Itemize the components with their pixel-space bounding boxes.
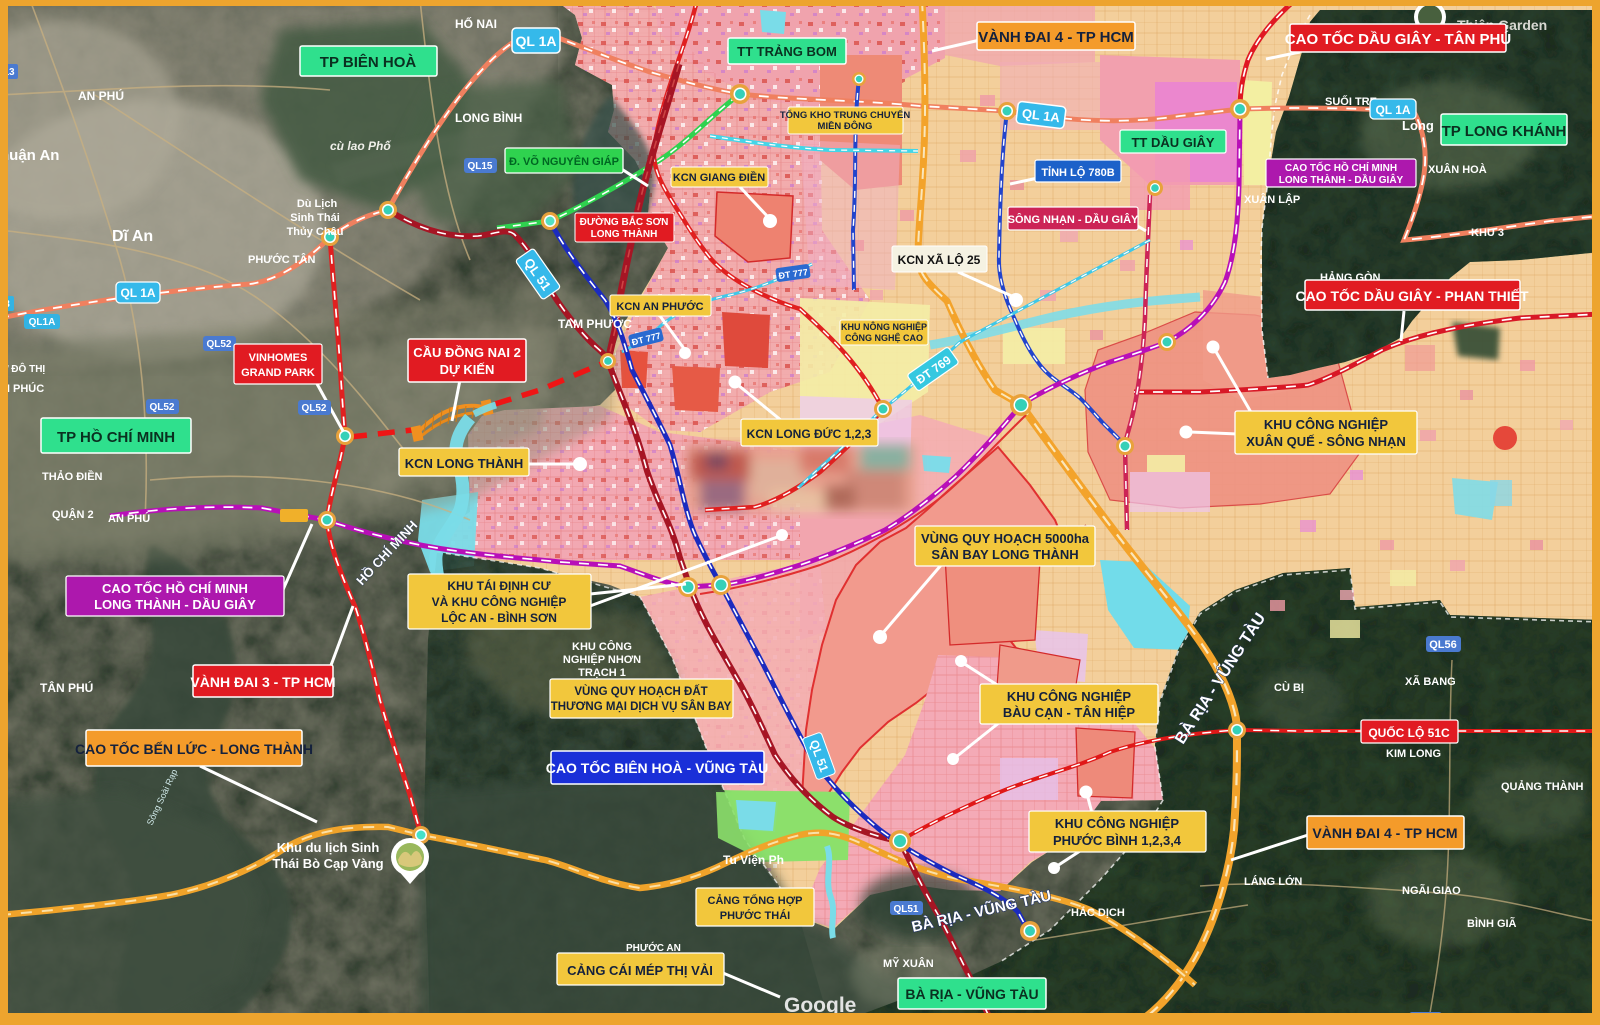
svg-text:CÔNG NGHỆ CAO: CÔNG NGHỆ CAO <box>845 332 923 343</box>
svg-text:ĐƯỜNG BẮC SƠN: ĐƯỜNG BẮC SƠN <box>580 215 669 228</box>
svg-text:CẢNG CÁI MÉP THỊ VẢI: CẢNG CÁI MÉP THỊ VẢI <box>567 963 713 978</box>
svg-text:QL15: QL15 <box>467 161 492 172</box>
svg-text:TÂN PHÚ: TÂN PHÚ <box>40 680 93 695</box>
svg-text:BÀ RỊA - VŨNG TÀU: BÀ RỊA - VŨNG TÀU <box>905 985 1038 1002</box>
svg-text:BÀU CẠN - TÂN HIỆP: BÀU CẠN - TÂN HIỆP <box>1003 705 1135 720</box>
svg-text:SÂN BAY LONG THÀNH: SÂN BAY LONG THÀNH <box>931 547 1078 562</box>
svg-text:CAO TỐC DẦU GIÂY - PHAN THIẾT: CAO TỐC DẦU GIÂY - PHAN THIẾT <box>1295 287 1529 304</box>
svg-text:N PHÚC: N PHÚC <box>2 382 44 395</box>
svg-text:VÙNG QUY HOẠCH ĐẤT: VÙNG QUY HOẠCH ĐẤT <box>574 685 707 698</box>
svg-text:Tu Viện Ph: Tu Viện Ph <box>723 853 784 867</box>
svg-text:KCN LONG THÀNH: KCN LONG THÀNH <box>405 456 523 471</box>
svg-text:NGÃI GIAO: NGÃI GIAO <box>1402 884 1461 897</box>
svg-text:CẢNG TỔNG HỢP: CẢNG TỔNG HỢP <box>708 894 803 907</box>
svg-text:VÀNH ĐAI 4 - TP HCM: VÀNH ĐAI 4 - TP HCM <box>978 29 1134 46</box>
svg-text:QL56: QL56 <box>1429 639 1457 651</box>
svg-text:cù lao Phố: cù lao Phố <box>330 139 391 153</box>
svg-text:Thủy Châu: Thủy Châu <box>287 226 344 238</box>
svg-text:PHƯỚC BÌNH 1,2,3,4: PHƯỚC BÌNH 1,2,3,4 <box>1053 833 1182 848</box>
svg-text:QL 1A: QL 1A <box>1375 103 1410 117</box>
svg-text:Đ. VÕ NGUYÊN GIÁP: Đ. VÕ NGUYÊN GIÁP <box>509 155 619 168</box>
svg-text:KCN AN PHƯỚC: KCN AN PHƯỚC <box>616 300 703 313</box>
svg-text:KCN XÃ LỘ 25: KCN XÃ LỘ 25 <box>898 252 981 267</box>
svg-text:TT DẦU GIÂY: TT DẦU GIÂY <box>1131 135 1214 150</box>
svg-text:THẢO ĐIỀN: THẢO ĐIỀN <box>42 470 103 483</box>
svg-text:CÙ BỊ: CÙ BỊ <box>1274 681 1304 694</box>
svg-text:AN PHÚ: AN PHÚ <box>78 88 124 103</box>
svg-text:MỸ XUÂN: MỸ XUÂN <box>883 957 934 970</box>
svg-text:NGHIỆP NHƠN: NGHIỆP NHƠN <box>563 653 641 666</box>
svg-text:KHU 3: KHU 3 <box>1471 227 1504 239</box>
svg-text:XUÂN HOÀ: XUÂN HOÀ <box>1428 163 1487 176</box>
svg-text:KHU CÔNG NGHIỆP: KHU CÔNG NGHIỆP <box>1007 689 1132 704</box>
svg-text:QL 1A: QL 1A <box>516 33 557 49</box>
svg-text:KCN LONG ĐỨC 1,2,3: KCN LONG ĐỨC 1,2,3 <box>747 426 872 441</box>
svg-text:CAO TỐC BIÊN HOÀ - VŨNG TÀU: CAO TỐC BIÊN HOÀ - VŨNG TÀU <box>546 759 768 776</box>
svg-text:QL52: QL52 <box>301 403 326 414</box>
svg-text:KCN GIANG ĐIỀN: KCN GIANG ĐIỀN <box>673 171 765 184</box>
svg-text:KIM LONG: KIM LONG <box>1386 748 1441 760</box>
svg-text:LỘC AN - BÌNH SƠN: LỘC AN - BÌNH SƠN <box>441 610 557 625</box>
svg-text:PHƯỚC TÂN: PHƯỚC TÂN <box>248 253 315 266</box>
svg-text:TP LONG KHÁNH: TP LONG KHÁNH <box>1442 123 1567 140</box>
svg-text:VÀ KHU CÔNG NGHIỆP: VÀ KHU CÔNG NGHIỆP <box>432 594 567 609</box>
svg-text:TỈNH LỘ 780B: TỈNH LỘ 780B <box>1041 166 1114 179</box>
svg-text:PHƯỚC THÁI: PHƯỚC THÁI <box>720 909 790 922</box>
svg-text:QL52: QL52 <box>149 402 174 413</box>
svg-text:CAO TỐC DẦU GIÂY - TÂN PHÚ: CAO TỐC DẦU GIÂY - TÂN PHÚ <box>1285 30 1511 48</box>
svg-text:PHƯỚC AN: PHƯỚC AN <box>626 941 681 954</box>
svg-text:BÌNH GIÃ: BÌNH GIÃ <box>1467 917 1517 930</box>
svg-text:Long: Long <box>1402 118 1434 133</box>
svg-text:DỰ KIẾN: DỰ KIẾN <box>440 362 495 377</box>
svg-text:HỐ NAI: HỐ NAI <box>455 16 497 31</box>
svg-text:LONG THÀNH - DẦU GIÂY: LONG THÀNH - DẦU GIÂY <box>94 597 256 612</box>
svg-text:Khu du lịch Sinh: Khu du lịch Sinh <box>277 840 380 855</box>
svg-text:XÃ BANG: XÃ BANG <box>1405 675 1456 688</box>
svg-text:Thái Bò Cạp Vàng: Thái Bò Cạp Vàng <box>272 856 383 871</box>
svg-text:TAM PHƯỚC: TAM PHƯỚC <box>558 316 632 331</box>
svg-text:QL 1A: QL 1A <box>120 286 155 300</box>
svg-text:QL1A: QL1A <box>29 317 56 328</box>
svg-text:LÁNG LỚN: LÁNG LỚN <box>1244 875 1302 888</box>
svg-text:TỔNG KHO TRUNG CHUYỂN: TỔNG KHO TRUNG CHUYỂN <box>780 109 911 121</box>
svg-text:HẮC DỊCH: HẮC DỊCH <box>1071 906 1125 919</box>
svg-text:Sinh Thái: Sinh Thái <box>290 212 340 224</box>
svg-text:GRAND PARK: GRAND PARK <box>241 367 315 379</box>
svg-text:VÀNH ĐAI 4 - TP HCM: VÀNH ĐAI 4 - TP HCM <box>1312 825 1457 841</box>
svg-text:TP HỒ CHÍ MINH: TP HỒ CHÍ MINH <box>57 428 175 446</box>
svg-text:AN PHÚ: AN PHÚ <box>108 512 150 525</box>
svg-text:SUỐI TRE: SUỐI TRE <box>1325 94 1377 108</box>
svg-text:XUÂN QUẾ - SÔNG NHẠN: XUÂN QUẾ - SÔNG NHẠN <box>1246 434 1406 449</box>
svg-text:QUẬN 2: QUẬN 2 <box>52 508 94 521</box>
svg-text:QUẢNG THÀNH: QUẢNG THÀNH <box>1501 780 1584 793</box>
svg-text:KHU CÔNG NGHIỆP: KHU CÔNG NGHIỆP <box>1055 816 1180 831</box>
svg-text:KHU CÔNG: KHU CÔNG <box>572 640 632 653</box>
svg-text:KHU NÔNG NGHIỆP: KHU NÔNG NGHIỆP <box>841 321 927 332</box>
svg-text:QL51: QL51 <box>893 904 918 915</box>
svg-text:VÙNG QUY HOẠCH 5000ha: VÙNG QUY HOẠCH 5000ha <box>921 531 1090 546</box>
svg-text:VÀNH ĐAI 3 - TP HCM: VÀNH ĐAI 3 - TP HCM <box>190 674 335 690</box>
svg-text:Dù Lịch: Dù Lịch <box>297 198 338 210</box>
svg-text:CAO TỐC HỒ CHÍ MINH: CAO TỐC HỒ CHÍ MINH <box>1285 160 1397 174</box>
svg-text:CẦU ĐỒNG NAI 2: CẦU ĐỒNG NAI 2 <box>413 345 521 360</box>
svg-text:TRẠCH 1: TRẠCH 1 <box>578 667 626 679</box>
svg-text:Dĩ An: Dĩ An <box>112 228 153 245</box>
svg-text:TP BIÊN HOÀ: TP BIÊN HOÀ <box>320 53 417 71</box>
svg-text:THƯƠNG MẠI DỊCH VỤ SÂN BAY: THƯƠNG MẠI DỊCH VỤ SÂN BAY <box>551 700 732 713</box>
svg-text:huận An: huận An <box>0 147 59 164</box>
svg-text:KHU CÔNG NGHIỆP: KHU CÔNG NGHIỆP <box>1264 417 1389 432</box>
svg-text:LONG THÀNH: LONG THÀNH <box>591 227 658 240</box>
svg-text:XUÂN LẬP: XUÂN LẬP <box>1244 193 1300 206</box>
svg-text:LONG THÀNH - DẦU GIÂY: LONG THÀNH - DẦU GIÂY <box>1279 173 1404 186</box>
svg-text:CAO TỐC BẾN LỨC - LONG THÀNH: CAO TỐC BẾN LỨC - LONG THÀNH <box>75 740 313 757</box>
svg-text:MIỀN ĐÔNG: MIỀN ĐÔNG <box>818 120 873 132</box>
svg-text:KHU TÁI ĐỊNH CƯ: KHU TÁI ĐỊNH CƯ <box>447 578 550 593</box>
svg-text:LONG BÌNH: LONG BÌNH <box>455 110 522 125</box>
svg-text:VINHOMES: VINHOMES <box>249 352 308 364</box>
svg-text:QL52: QL52 <box>206 339 231 350</box>
svg-text:SÔNG NHẠN - DẦU GIÂY: SÔNG NHẠN - DẦU GIÂY <box>1008 213 1139 226</box>
svg-text:CAO TỐC HỒ CHÍ MINH: CAO TỐC HỒ CHÍ MINH <box>102 581 248 596</box>
svg-text:QUỐC LỘ 51C: QUỐC LỘ 51C <box>1368 725 1450 740</box>
svg-text:TT TRẢNG BOM: TT TRẢNG BOM <box>737 44 837 59</box>
